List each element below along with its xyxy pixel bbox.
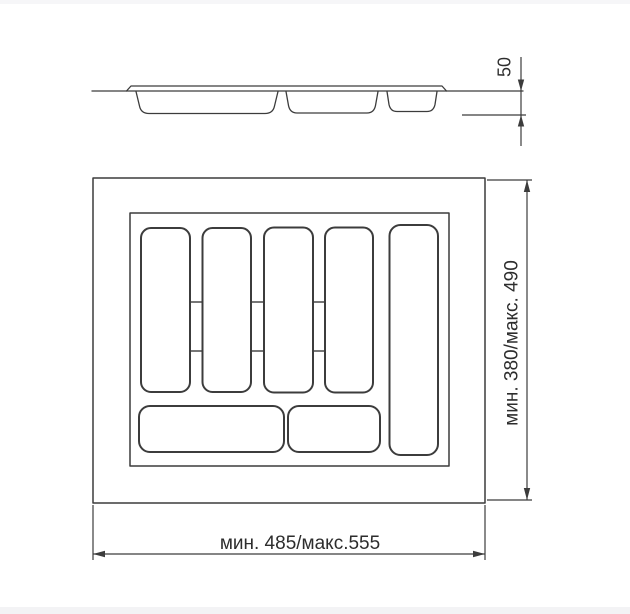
tray-rim-profile [127, 86, 447, 91]
compartment-slot-1 [141, 228, 190, 392]
depth-arrow-top [518, 80, 524, 92]
width-dimension: мин. 485/макс.555 [93, 505, 485, 560]
compartment-wide-left [139, 406, 284, 452]
drawing-canvas: 50 [0, 0, 630, 614]
compartment-wide-right [288, 406, 380, 452]
height-arrow-top [524, 180, 530, 192]
depth-dimension: 50 [462, 57, 526, 146]
page-edge-top [0, 0, 630, 4]
compartment-slot-4 [325, 228, 373, 393]
compartment-profile-2 [286, 92, 378, 114]
top-view-section: мин. 485/макс.555 мин. 380/макс. 490 [93, 178, 532, 560]
width-arrow-left [93, 551, 105, 557]
side-view-section: 50 [92, 57, 526, 146]
compartment-profile-1 [136, 92, 278, 114]
depth-dimension-label: 50 [494, 57, 514, 77]
width-arrow-right [473, 551, 485, 557]
cutlery-tray-technical-drawing: 50 [0, 0, 630, 614]
height-dimension: мин. 380/макс. 490 [487, 180, 532, 500]
page-edge-bottom [0, 607, 630, 614]
height-dimension-label: мин. 380/макс. 490 [502, 260, 523, 426]
width-dimension-label: мин. 485/макс.555 [220, 533, 380, 554]
compartment-slot-2 [203, 228, 252, 392]
compartment-profile-3 [387, 92, 437, 112]
compartment-slot-5 [390, 225, 439, 455]
compartment-slot-3 [264, 228, 313, 393]
depth-arrow-bottom [518, 115, 524, 127]
height-arrow-bottom [524, 488, 530, 500]
